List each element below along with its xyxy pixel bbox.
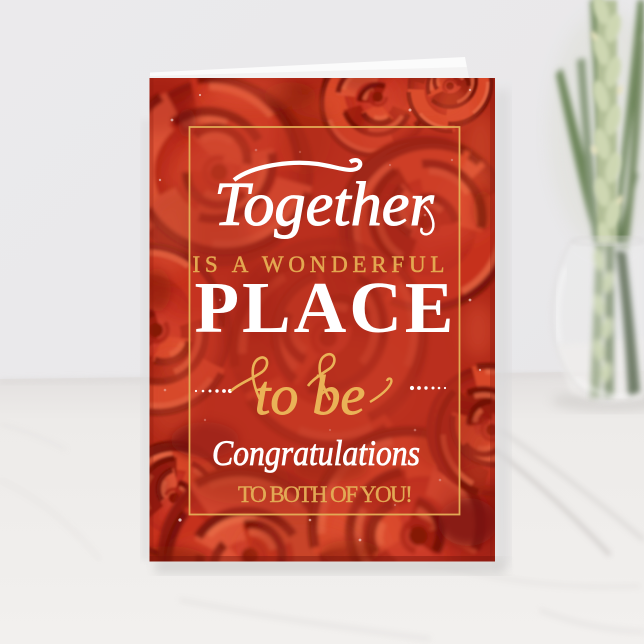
svg-text:Together: Together xyxy=(214,171,434,239)
svg-text:to be: to be xyxy=(255,365,365,427)
svg-text:Congratulations: Congratulations xyxy=(212,433,420,473)
svg-text:PLACE: PLACE xyxy=(195,267,457,348)
svg-text:TO BOTH OF YOU!: TO BOTH OF YOU! xyxy=(238,482,413,507)
